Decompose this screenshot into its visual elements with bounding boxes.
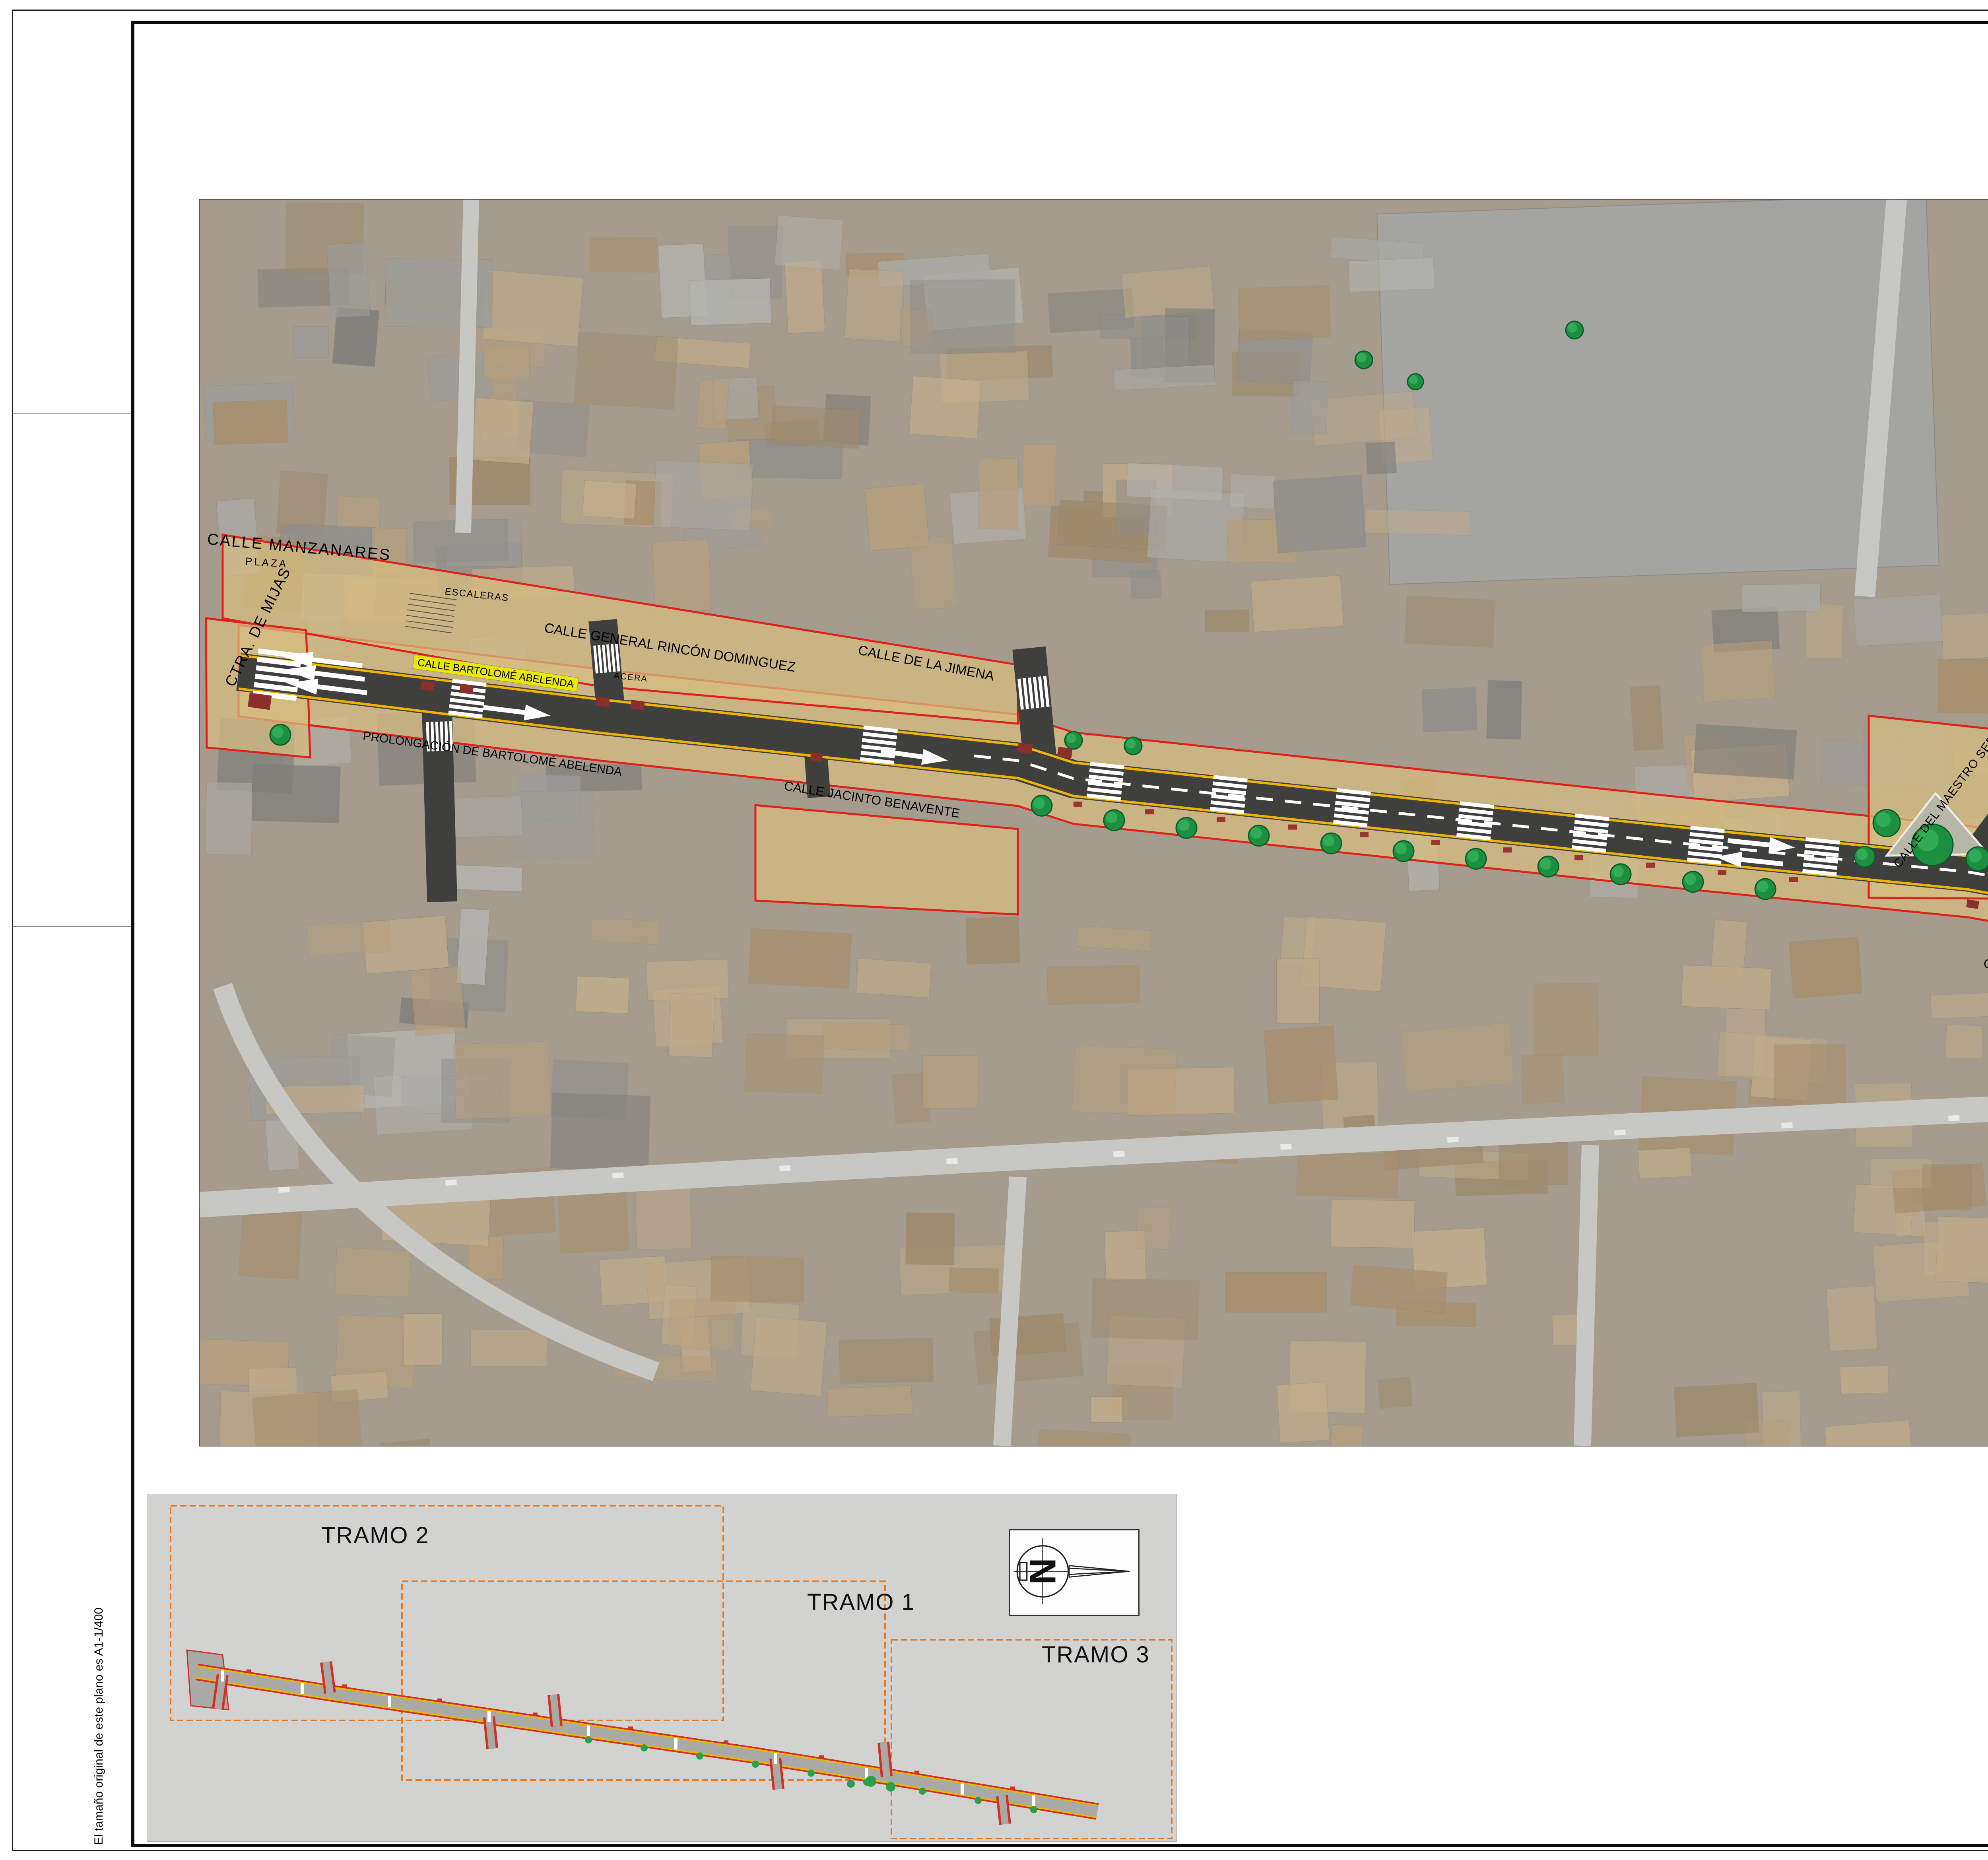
curb-tick <box>1360 832 1369 837</box>
tree-icon <box>1355 351 1373 369</box>
tree-icon <box>1408 374 1423 390</box>
tree-icon <box>1104 810 1124 831</box>
curb-tick <box>1789 877 1798 882</box>
parked-car <box>1948 1115 1960 1121</box>
curb-patch <box>1017 743 1033 754</box>
plan-overlay <box>0 0 1988 1860</box>
sheet-size-note: El tamaño original de este plano es A1-1… <box>92 1608 106 1845</box>
tree-icon <box>1683 872 1703 892</box>
aerial-street <box>1865 200 1897 596</box>
curb-tick <box>1503 847 1512 852</box>
curb-patch <box>595 697 610 707</box>
parked-car <box>278 1187 290 1193</box>
curb-patch <box>459 684 474 695</box>
tree-icon <box>1065 732 1082 749</box>
curb-tick <box>1431 840 1440 845</box>
tree-icon <box>1321 833 1342 854</box>
inset-tramo2-label: TRAMO 2 <box>321 1522 429 1549</box>
tree-icon <box>1176 817 1197 838</box>
tree-icon <box>1248 825 1269 846</box>
tree-icon <box>1966 847 1988 871</box>
tree-icon <box>1124 737 1142 755</box>
tree-icon <box>1854 847 1875 867</box>
curb-tick <box>1217 817 1225 822</box>
parked-car <box>445 1180 457 1186</box>
parked-car <box>946 1158 958 1164</box>
aerial-street <box>1582 1145 1590 1446</box>
aerial-street <box>1002 1177 1018 1446</box>
parked-car <box>1280 1144 1292 1150</box>
parked-car <box>1447 1137 1459 1143</box>
tree-icon <box>1393 841 1414 862</box>
inset-tree <box>641 1744 648 1751</box>
svg-text:N: N <box>1022 1558 1064 1584</box>
tree-icon <box>1466 848 1486 869</box>
tree-icon <box>1755 879 1776 899</box>
parked-car <box>779 1165 791 1171</box>
inset-tree <box>975 1797 982 1804</box>
curb-patch <box>1057 747 1073 758</box>
tree-icon <box>270 724 291 745</box>
plan-sheet: CALLE MANZANARES CTRA. DE MIJAS PLAZA ES… <box>0 0 1988 1860</box>
curb-patch <box>1966 899 1979 909</box>
tree-icon <box>1610 864 1631 885</box>
curb-tick <box>1288 825 1297 830</box>
north-arrow-inset: N <box>1009 1529 1140 1616</box>
plaza-label: PLAZA <box>245 556 288 569</box>
curb-tick <box>1646 863 1655 868</box>
aerial-street <box>200 1101 1988 1205</box>
parked-car <box>1781 1122 1793 1128</box>
curb-tick <box>1718 870 1726 875</box>
curb-tick <box>1145 809 1154 814</box>
inset-tree <box>585 1736 592 1744</box>
project-drawing <box>200 200 1988 1446</box>
inset-tramo1-label: TRAMO 1 <box>807 1589 915 1615</box>
inset-tree <box>1030 1806 1037 1813</box>
parked-car <box>612 1173 624 1179</box>
inset-tramo3-label: TRAMO 3 <box>1042 1641 1150 1668</box>
tree-icon <box>1538 856 1559 877</box>
actuation-band <box>755 805 1018 914</box>
tree-icon <box>1031 795 1052 816</box>
curb-patch <box>420 681 435 691</box>
inset-tree <box>752 1761 759 1768</box>
inset-tree <box>919 1788 926 1795</box>
curb-patch <box>630 700 645 711</box>
tree-icon <box>1566 321 1583 339</box>
tree-icon <box>1873 810 1900 837</box>
aerial-street <box>463 200 471 533</box>
curb-tick <box>1574 855 1583 860</box>
north-icon: N <box>1010 1530 1136 1612</box>
inset-tree <box>696 1753 703 1760</box>
parked-car <box>1113 1151 1125 1157</box>
curb-patch <box>810 752 823 762</box>
curb-tick <box>1074 802 1082 807</box>
inset-tree <box>808 1769 815 1777</box>
parked-car <box>1614 1130 1626 1136</box>
